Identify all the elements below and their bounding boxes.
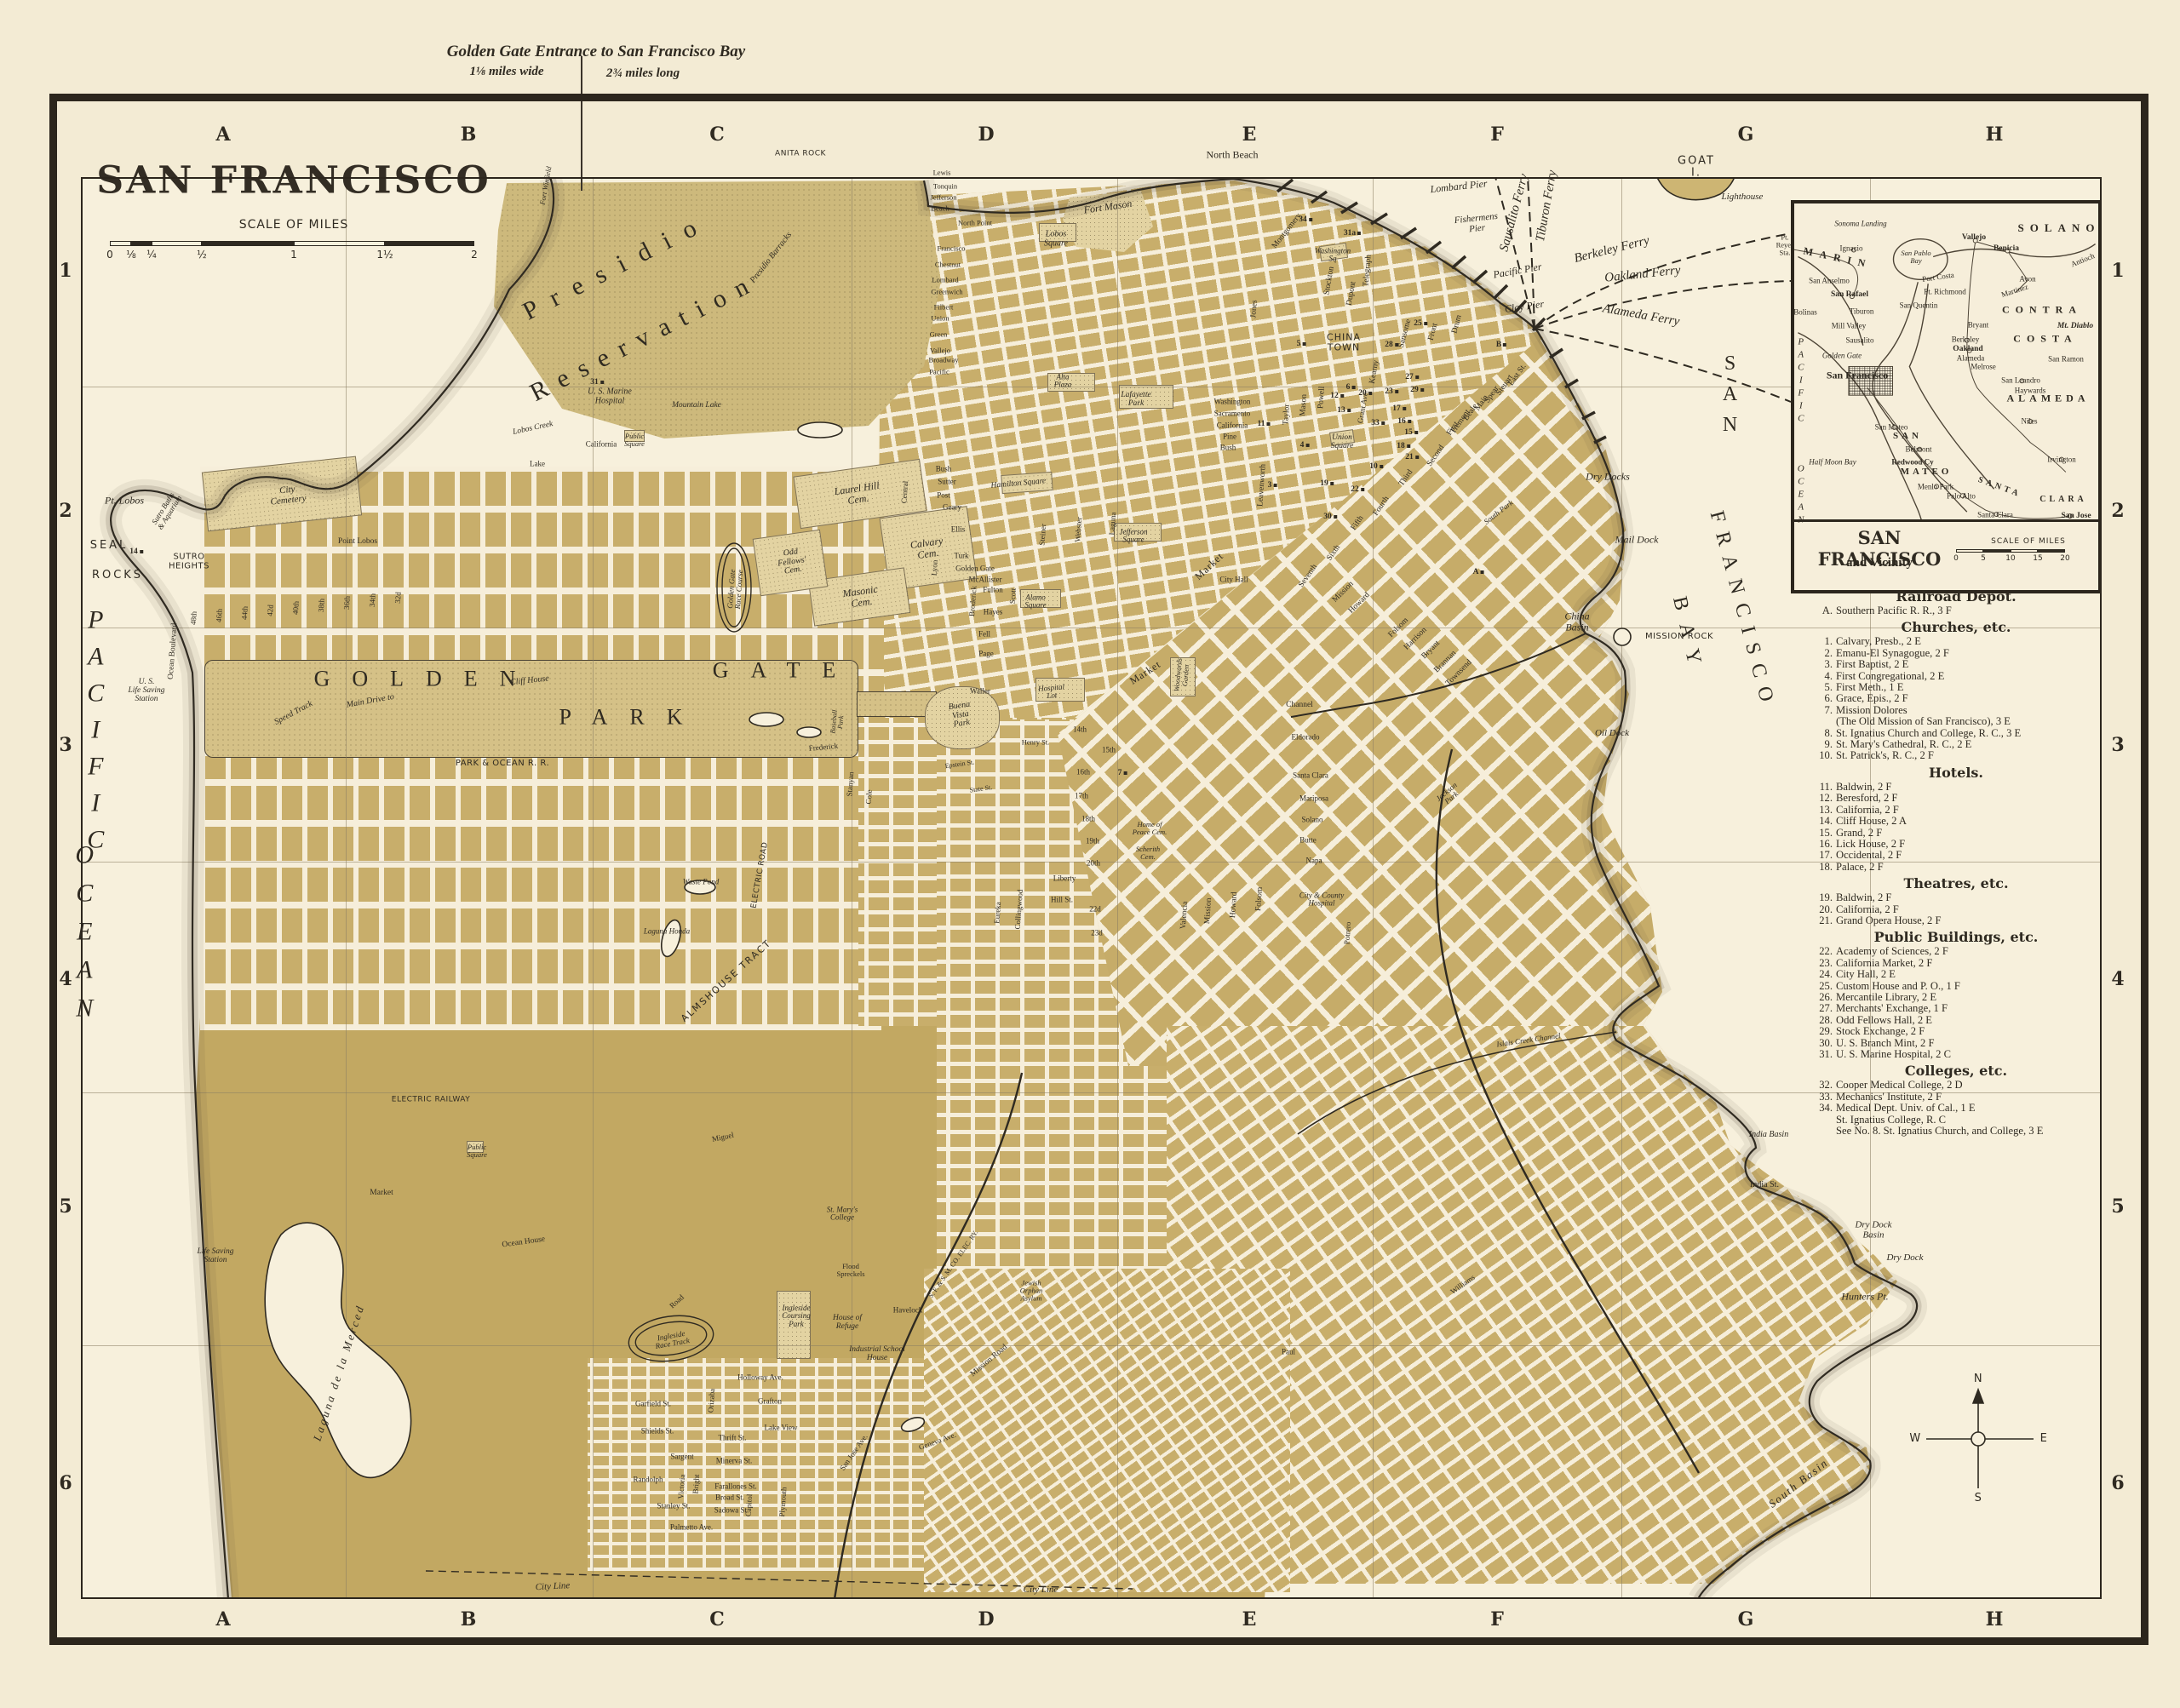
legend-item-number xyxy=(1810,1126,1836,1137)
inset-scale-tick: 5 xyxy=(1981,554,1986,563)
inset-title-band: SAN FRANCISCO and Vicinity SCALE OF MILE… xyxy=(1794,519,2098,590)
park-lake-1 xyxy=(749,713,783,726)
legend-item: 1.Calvary, Presb., 2 E xyxy=(1810,636,2102,647)
grid-col-F: F xyxy=(1490,1608,1504,1631)
legend-item-number: 18. xyxy=(1810,862,1836,873)
inset-scale-tick: 10 xyxy=(2005,554,2015,563)
grid-row-2: 2 xyxy=(2111,500,2124,522)
legend-item: 20.California, 2 F xyxy=(1810,904,2102,915)
legend-item: 2.Emanu-El Synagogue, 2 F xyxy=(1810,648,2102,659)
mission-creek-channel xyxy=(1291,633,1586,717)
grid-col-G: G xyxy=(1738,123,1754,146)
scale-of-miles-label: SCALE OF MILES xyxy=(239,218,349,232)
legend-item: 8.St. Ignatius Church and College, R. C.… xyxy=(1810,728,2102,739)
legend-item-number: 2. xyxy=(1810,648,1836,659)
grid-col-B: B xyxy=(461,1608,477,1631)
legend-item-number: 15. xyxy=(1810,828,1836,839)
legend-item-number: A. xyxy=(1810,605,1836,616)
legend-item-number: 26. xyxy=(1810,992,1836,1003)
legend-heading: Railroad Depot. xyxy=(1810,588,2102,605)
inset-subtitle: and Vicinity xyxy=(1803,556,1956,570)
legend-item: 3.First Baptist, 2 E xyxy=(1810,659,2102,670)
grid-row-5: 5 xyxy=(59,1195,72,1218)
legend-item-number xyxy=(1810,716,1836,727)
grid-row-1: 1 xyxy=(2111,260,2124,282)
map-label: GOAT I. xyxy=(1678,155,1715,178)
legend-item: 16.Lick House, 2 F xyxy=(1810,839,2102,850)
legend-item-text: California, 2 F xyxy=(1836,904,2102,915)
inset-scale-tick: 0 xyxy=(1953,554,1959,563)
legend-item-text: Medical Dept. Univ. of Cal., 1 E xyxy=(1836,1103,2102,1114)
legend-item-number: 5. xyxy=(1810,682,1836,693)
legend-heading: Public Buildings, etc. xyxy=(1810,929,2102,945)
mission-rock xyxy=(1614,628,1631,645)
legend-item: 9.St. Mary's Cathedral, R. C., 2 E xyxy=(1810,739,2102,750)
legend-item: 14.Cliff House, 2 A xyxy=(1810,816,2102,827)
legend-item-number: 25. xyxy=(1810,981,1836,992)
legend-item-text: Occidental, 2 F xyxy=(1836,850,2102,861)
scale-bar-segment xyxy=(385,241,474,246)
laguna-honda xyxy=(658,918,685,959)
legend-heading: Hotels. xyxy=(1810,765,2102,781)
legend-item: A.Southern Pacific R. R., 3 F xyxy=(1810,605,2102,616)
grid-col-E: E xyxy=(1242,123,1257,146)
grid-row-4: 4 xyxy=(59,968,72,990)
legend-item-text: First Congregational, 2 E xyxy=(1836,671,2102,682)
legend-item-number: 23. xyxy=(1810,958,1836,969)
grid-row-4: 4 xyxy=(2111,968,2124,990)
legend-item-text: Baldwin, 2 F xyxy=(1836,892,2102,903)
shoreline-bay xyxy=(924,179,1917,1597)
legend-item-text: Mission Dolores xyxy=(1836,705,2102,716)
goat-island xyxy=(1654,179,1736,200)
waste-pond xyxy=(685,880,715,894)
legend-item-number: 24. xyxy=(1810,969,1836,980)
grid-col-D: D xyxy=(978,1608,994,1631)
legend-item-text: U. S. Branch Mint, 2 F xyxy=(1836,1038,2102,1049)
scale-bar-segment xyxy=(110,241,131,246)
legend-item: 28.Odd Fellows Hall, 2 E xyxy=(1810,1015,2102,1026)
ferry-routes xyxy=(1495,179,1791,402)
legend-item-number: 21. xyxy=(1810,915,1836,926)
inset-linework xyxy=(1794,203,2098,520)
scale-tick: 1½ xyxy=(376,249,393,261)
inset-scale-segment xyxy=(2038,549,2065,553)
legend-item-number: 34. xyxy=(1810,1103,1836,1114)
geneva-pond xyxy=(899,1415,926,1435)
legend-item-text: Emanu-El Synagogue, 2 F xyxy=(1836,648,2102,659)
scale-bar-segment xyxy=(131,241,152,246)
legend-item-number: 19. xyxy=(1810,892,1836,903)
legend-item-text: Palace, 2 F xyxy=(1836,862,2102,873)
scale-tick: 1 xyxy=(290,249,297,261)
legend-item: 11.Baldwin, 2 F xyxy=(1810,782,2102,793)
legend-item: 17.Occidental, 2 F xyxy=(1810,850,2102,861)
legend-item: 6.Grace, Epis., 2 F xyxy=(1810,693,2102,704)
legend-item-text: Custom House and P. O., 1 F xyxy=(1836,981,2102,992)
scale-tick: 2 xyxy=(471,249,478,261)
grid-col-G: G xyxy=(1738,1608,1754,1631)
legend-item-text: City Hall, 2 E xyxy=(1836,969,2102,980)
map-title: SAN FRANCISCO xyxy=(96,159,490,203)
legend-item: St. Ignatius College, R. C xyxy=(1810,1115,2102,1126)
legend-item-text: Cliff House, 2 A xyxy=(1836,816,2102,827)
legend-item: 5.First Meth., 1 E xyxy=(1810,682,2102,693)
legend-item-number: 1. xyxy=(1810,636,1836,647)
legend-item-text: Mercantile Library, 2 E xyxy=(1836,992,2102,1003)
legend-item-text: Odd Fellows Hall, 2 E xyxy=(1836,1015,2102,1026)
legend-item-number: 13. xyxy=(1810,805,1836,816)
islais-creek xyxy=(1298,1032,1616,1134)
southern-pacific-line xyxy=(1437,749,1699,1473)
legend-item-text: Merchants' Exchange, 1 F xyxy=(1836,1003,2102,1014)
legend-item-number: 22. xyxy=(1810,946,1836,957)
legend-item-number: 6. xyxy=(1810,693,1836,704)
legend-item: (The Old Mission of San Francisco), 3 E xyxy=(1810,716,2102,727)
legend-item-text: Southern Pacific R. R., 3 F xyxy=(1836,605,2102,616)
grid-col-A: A xyxy=(215,123,230,146)
map-label: North Beach xyxy=(1207,150,1259,161)
legend-item: 27.Merchants' Exchange, 1 F xyxy=(1810,1003,2102,1014)
legend-item: 21.Grand Opera House, 2 F xyxy=(1810,915,2102,926)
legend-item: 34.Medical Dept. Univ. of Cal., 1 E xyxy=(1810,1103,2102,1114)
legend-item: See No. 8. St. Ignatius Church, and Coll… xyxy=(1810,1126,2102,1137)
grid-row-1: 1 xyxy=(59,260,72,282)
legend-item: 25.Custom House and P. O., 1 F xyxy=(1810,981,2102,992)
grid-col-H: H xyxy=(1986,123,2004,146)
race-tracks xyxy=(626,543,751,1367)
legend-item-number: 11. xyxy=(1810,782,1836,793)
grid-row-6: 6 xyxy=(2111,1472,2124,1494)
legend-item-number: 9. xyxy=(1810,739,1836,750)
legend-item: 12.Beresford, 2 F xyxy=(1810,793,2102,804)
legend-item: 33.Mechanics' Institute, 2 F xyxy=(1810,1092,2102,1103)
legend-item-text: Mechanics' Institute, 2 F xyxy=(1836,1092,2102,1103)
legend-item-text: Lick House, 2 F xyxy=(1836,839,2102,850)
legend-item-number: 3. xyxy=(1810,659,1836,670)
scale-tick: ¼ xyxy=(146,249,157,261)
grid-col-C: C xyxy=(709,123,725,146)
legend-item-text: St. Ignatius College, R. C xyxy=(1836,1115,2102,1126)
legend-item-text: Grand, 2 F xyxy=(1836,828,2102,839)
grid-col-H: H xyxy=(1986,1608,2004,1631)
legend-item: 30.U. S. Branch Mint, 2 F xyxy=(1810,1038,2102,1049)
grid-row-6: 6 xyxy=(59,1472,72,1494)
legend-item-text: Grand Opera House, 2 F xyxy=(1836,915,2102,926)
legend-item-text: Cooper Medical College, 2 D xyxy=(1836,1080,2102,1091)
legend-item-number: 27. xyxy=(1810,1003,1836,1014)
inset-scale-segment xyxy=(1983,549,2011,553)
inset-scale-segment xyxy=(1956,549,1983,553)
legend-item-text: First Baptist, 2 E xyxy=(1836,659,2102,670)
legend-item-number: 10. xyxy=(1810,750,1836,761)
legend-item-number: 16. xyxy=(1810,839,1836,850)
legend-item: 7.Mission Dolores xyxy=(1810,705,2102,716)
map-annotation-title: Golden Gate Entrance to San Francisco Ba… xyxy=(400,43,792,61)
legend-item: 10.St. Patrick's, R. C., 2 F xyxy=(1810,750,2102,761)
legend-item-text: Beresford, 2 F xyxy=(1836,793,2102,804)
inset-scale-segment xyxy=(2011,549,2038,553)
legend-item-number: 33. xyxy=(1810,1092,1836,1103)
legend-item-text: Calvary, Presb., 2 E xyxy=(1836,636,2102,647)
legend: Railroad Depot.A.Southern Pacific R. R.,… xyxy=(1810,586,2102,1137)
legend-heading: Theatres, etc. xyxy=(1810,875,2102,891)
legend-item: 22.Academy of Sciences, 2 F xyxy=(1810,946,2102,957)
legend-item-text: (The Old Mission of San Francisco), 3 E xyxy=(1836,716,2102,727)
electric-railway-line xyxy=(835,1073,1022,1597)
legend-item-text: Academy of Sciences, 2 F xyxy=(1836,946,2102,957)
legend-heading: Churches, etc. xyxy=(1810,619,2102,635)
legend-item-text: See No. 8. St. Ignatius Church, and Coll… xyxy=(1836,1126,2102,1137)
legend-item-number: 17. xyxy=(1810,850,1836,861)
grid-col-F: F xyxy=(1490,123,1504,146)
scale-tick: 0 xyxy=(106,249,113,261)
legend-heading: Colleges, etc. xyxy=(1810,1063,2102,1079)
inset-scale-label: SCALE OF MILES xyxy=(1965,537,2092,546)
map-annotation-width: 1⅛ miles wide xyxy=(443,65,571,79)
inset-map: SAN FRANCISCO and Vicinity SCALE OF MILE… xyxy=(1791,200,2102,593)
legend-item-number: 4. xyxy=(1810,671,1836,682)
legend-item-number: 20. xyxy=(1810,904,1836,915)
map-sheet: Golden Gate Entrance to San Francisco Ba… xyxy=(0,0,2180,1708)
legend-item: 24.City Hall, 2 E xyxy=(1810,969,2102,980)
legend-item: 29.Stock Exchange, 2 F xyxy=(1810,1026,2102,1037)
legend-item: 31.U. S. Marine Hospital, 2 C xyxy=(1810,1049,2102,1060)
legend-item-number xyxy=(1810,1115,1836,1126)
scale-tick: ½ xyxy=(197,249,207,261)
city-line xyxy=(426,1571,1133,1589)
legend-item-number: 14. xyxy=(1810,816,1836,827)
legend-item-text: St. Mary's Cathedral, R. C., 2 E xyxy=(1836,739,2102,750)
legend-item: 18.Palace, 2 F xyxy=(1810,862,2102,873)
map-label: Lewis xyxy=(933,169,951,177)
legend-item-text: California Market, 2 F xyxy=(1836,958,2102,969)
laguna-de-la-merced xyxy=(265,1223,410,1477)
grid-row-3: 3 xyxy=(2111,734,2124,756)
legend-item-text: California, 2 F xyxy=(1836,805,2102,816)
scale-bar-segment xyxy=(152,241,202,246)
grid-col-C: C xyxy=(709,1608,725,1631)
legend-item-text: Grace, Epis., 2 F xyxy=(1836,693,2102,704)
legend-item-number: 12. xyxy=(1810,793,1836,804)
grid-col-D: D xyxy=(978,123,994,146)
piers xyxy=(1277,180,1606,443)
map-label: ANITA ROCK xyxy=(775,150,826,158)
scale-tick: ⅛ xyxy=(126,249,136,261)
legend-item-number: 30. xyxy=(1810,1038,1836,1049)
legend-item: 4.First Congregational, 2 E xyxy=(1810,671,2102,682)
grid-row-2: 2 xyxy=(59,500,72,522)
legend-item: 13.California, 2 F xyxy=(1810,805,2102,816)
legend-item: 26.Mercantile Library, 2 E xyxy=(1810,992,2102,1003)
legend-item-text: Baldwin, 2 F xyxy=(1836,782,2102,793)
legend-item-number: 7. xyxy=(1810,705,1836,716)
scale-bar-segment xyxy=(294,241,385,246)
mountain-lake xyxy=(798,422,842,438)
legend-item-number: 28. xyxy=(1810,1015,1836,1026)
legend-item-text: Stock Exchange, 2 F xyxy=(1836,1026,2102,1037)
inset-scale-tick: 20 xyxy=(2060,554,2069,563)
grid-col-E: E xyxy=(1242,1608,1257,1631)
park-lake-2 xyxy=(797,727,821,737)
legend-item-number: 8. xyxy=(1810,728,1836,739)
scale-bar-segment xyxy=(202,241,294,246)
legend-item: 15.Grand, 2 F xyxy=(1810,828,2102,839)
grid-row-3: 3 xyxy=(59,734,72,756)
legend-item-text: St. Patrick's, R. C., 2 F xyxy=(1836,750,2102,761)
legend-item-text: First Meth., 1 E xyxy=(1836,682,2102,693)
legend-item-number: 31. xyxy=(1810,1049,1836,1060)
legend-item-number: 29. xyxy=(1810,1026,1836,1037)
legend-item-number: 32. xyxy=(1810,1080,1836,1091)
lakes xyxy=(265,422,926,1477)
legend-item-text: U. S. Marine Hospital, 2 C xyxy=(1836,1049,2102,1060)
legend-item: 23.California Market, 2 F xyxy=(1810,958,2102,969)
legend-item: 32.Cooper Medical College, 2 D xyxy=(1810,1080,2102,1091)
legend-item: 19.Baldwin, 2 F xyxy=(1810,892,2102,903)
compass-rose xyxy=(1926,1390,2034,1488)
grid-row-5: 5 xyxy=(2111,1195,2124,1218)
inset-scale-tick: 15 xyxy=(2033,554,2042,563)
grid-col-B: B xyxy=(461,123,477,146)
map-annotation-length: 2¾ miles long xyxy=(579,66,707,81)
grid-col-A: A xyxy=(215,1608,230,1631)
legend-item-text: St. Ignatius Church and College, R. C., … xyxy=(1836,728,2102,739)
